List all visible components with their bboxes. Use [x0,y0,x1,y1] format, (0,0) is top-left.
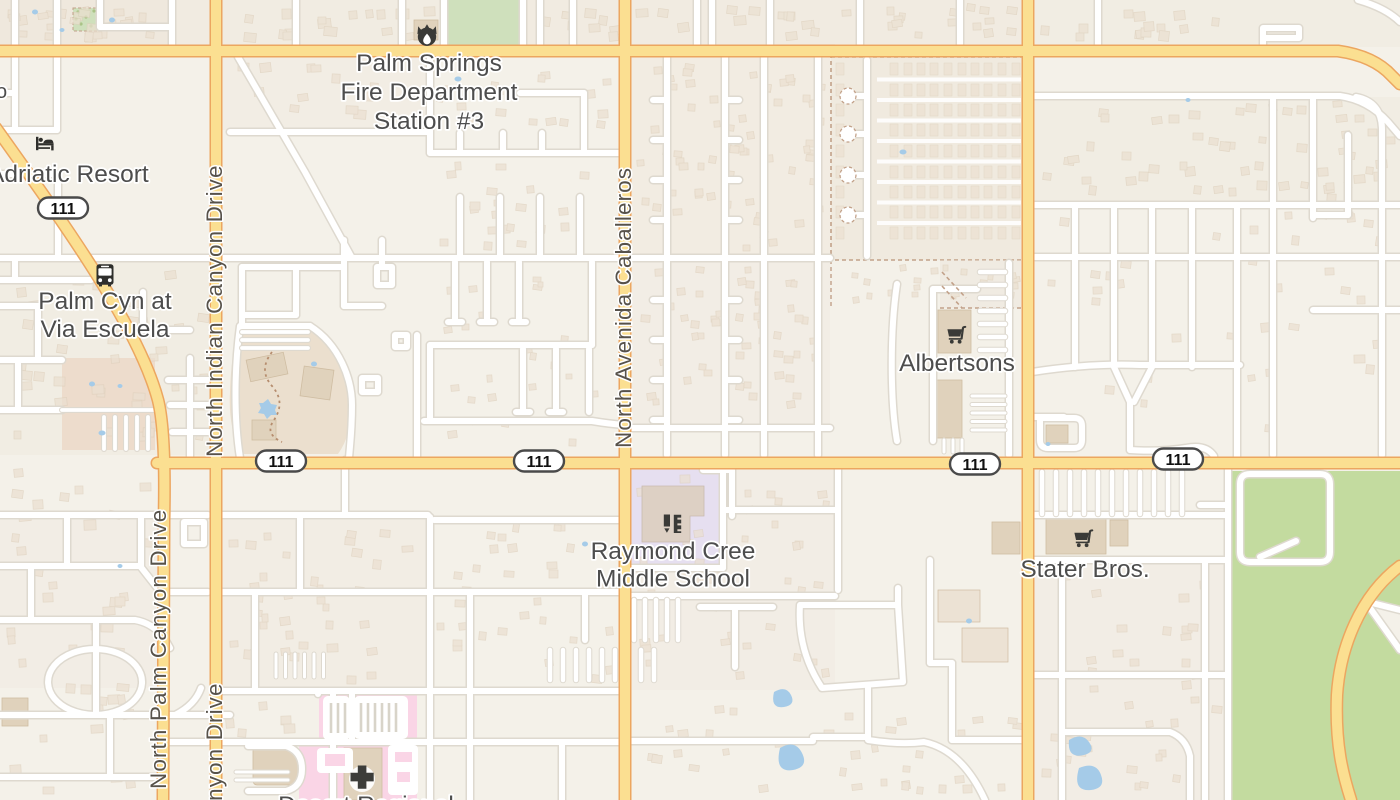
svg-text:Adriatic Resort: Adriatic Resort [0,161,149,188]
svg-text:111: 111 [963,457,988,474]
svg-text:North Indian Canyon Drive: North Indian Canyon Drive [202,164,227,457]
svg-text:Fire Department: Fire Department [340,79,517,106]
svg-text:Stater Bros.: Stater Bros. [1020,556,1149,583]
svg-text:111: 111 [51,201,76,218]
svg-text:Middle School: Middle School [596,566,750,593]
svg-text:North Palm Canyon Drive: North Palm Canyon Drive [146,509,171,789]
svg-text:Albertsons: Albertsons [899,350,1015,377]
svg-text:Palm Cyn at: Palm Cyn at [38,288,172,315]
svg-text:111: 111 [269,454,294,471]
svg-text:North Avenida Caballeros: North Avenida Caballeros [611,167,636,448]
svg-text:Desert Regional: Desert Regional [278,792,454,800]
svg-text:Station #3: Station #3 [374,108,484,135]
svg-text:111: 111 [527,454,552,471]
svg-text:Palm Springs: Palm Springs [356,50,502,77]
svg-text:111: 111 [1166,452,1191,469]
svg-text:North Indian Canyon Drive: North Indian Canyon Drive [202,682,227,800]
svg-text:Raymond Cree: Raymond Cree [591,538,756,565]
svg-text:Via Escuela: Via Escuela [41,316,170,343]
svg-text:o: o [0,81,7,103]
